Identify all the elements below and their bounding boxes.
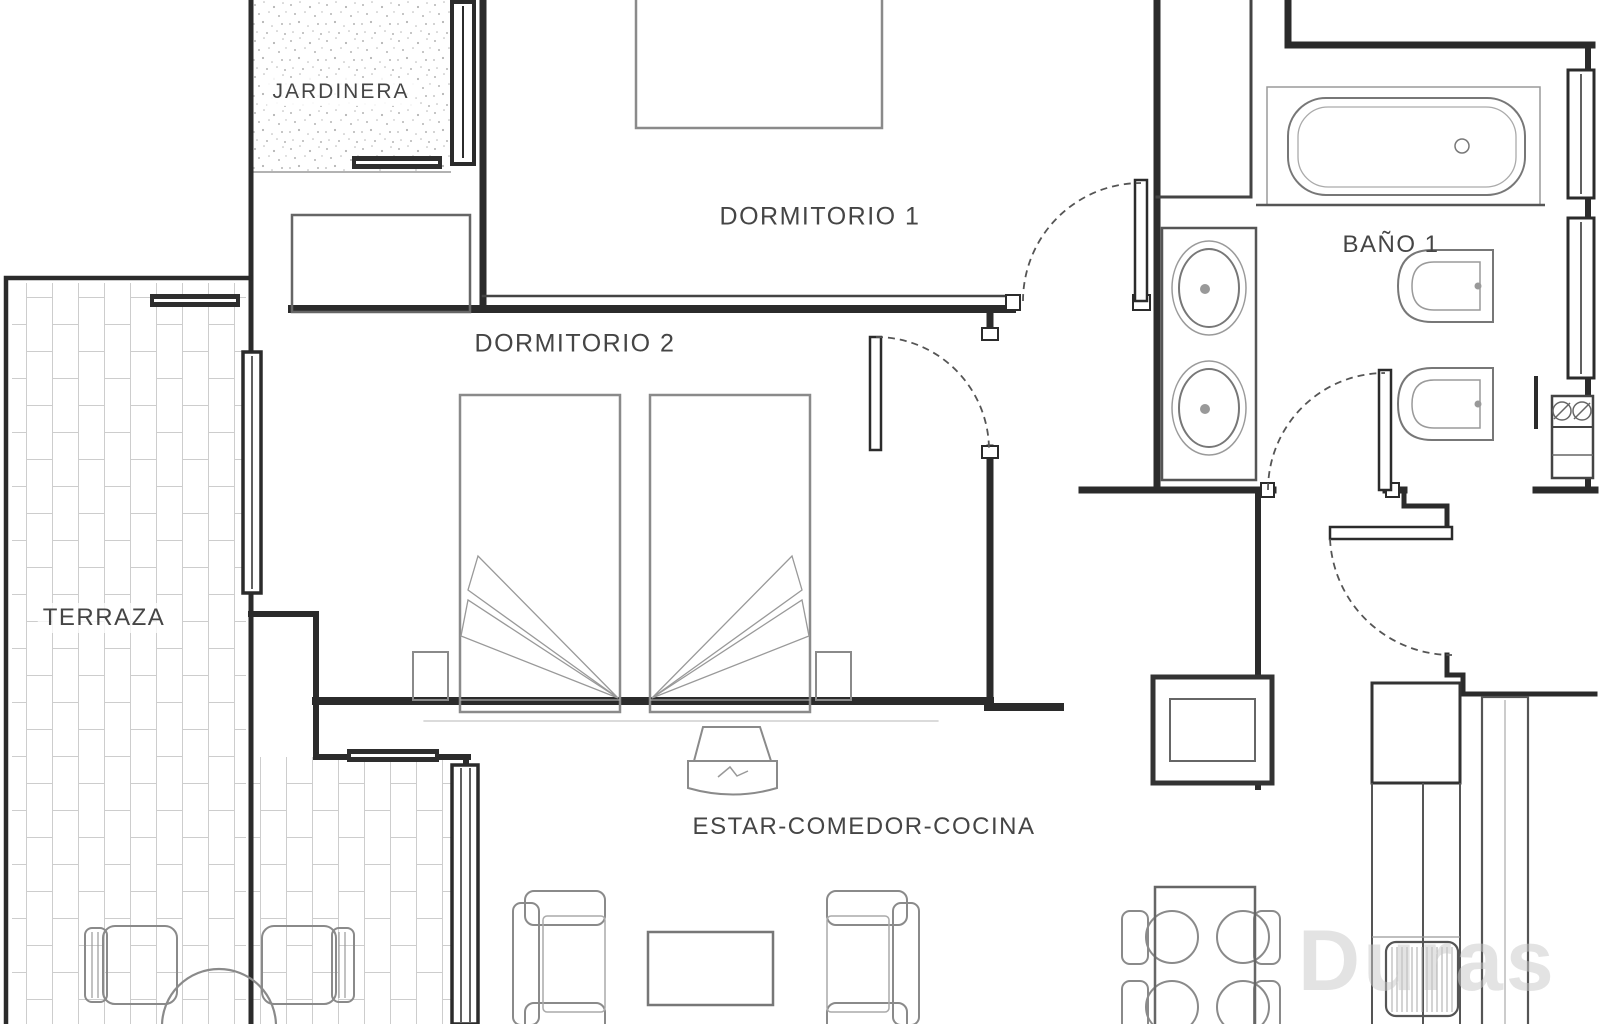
dining-table [1155,887,1255,1024]
label-jardinera: JARDINERA [266,78,415,106]
sheet-fold [461,600,618,698]
wall-bath-top [1288,0,1592,45]
washer-icon [1552,396,1593,478]
floor-plan-drawing [0,0,1600,1024]
wall-entry-steps [1404,490,1595,694]
nightstand-right [816,652,851,700]
window-sill-estar-sw [347,749,439,762]
bidet-icon [1398,368,1493,440]
door-swing-arc [1023,183,1141,301]
bed-dorm1 [636,0,882,128]
sheet-fold [652,600,809,698]
window-sill-terraza-top [150,294,240,307]
window-jardinera-right [452,2,474,164]
dining-set [1122,887,1280,1024]
door-swing-arc [1268,373,1385,490]
watermark: Duras [1298,912,1557,1011]
fridge-icon [1372,683,1460,783]
bed-dorm2-left [460,395,620,712]
floor-textures [12,0,452,1024]
bathtub-icon [1288,98,1525,195]
door-leaf [1379,370,1391,490]
bed-dorm2-right [650,395,810,712]
bathroom-fixtures [1162,87,1593,480]
armchair-right [827,891,919,1024]
door-leaf [1135,180,1147,301]
label-estar: ESTAR-COMEDOR-COCINA [693,813,1036,841]
coffee-table [648,932,773,1005]
wall-dorm2-sw-jog [251,614,316,757]
toilet-icon [1398,250,1493,322]
floor-plan: JARDINERA DORMITORIO 1 DORMITORIO 2 BAÑO… [0,0,1600,1024]
window-sliding-estar-terraza [452,765,478,1024]
door-swing-arc [1330,539,1452,655]
door-swing-arc [876,337,989,450]
door-leaf [1330,527,1452,539]
window-bath-right-2 [1568,218,1594,378]
wardrobe-dorm2 [292,215,470,312]
door-dormitorio2 [870,328,998,458]
label-dormitorio1: DORMITORIO 1 [720,203,921,232]
door-bano1 [1261,370,1399,497]
nightstand-left [413,652,448,700]
kitchen-island [1153,677,1272,783]
sink-icon-1 [1172,241,1246,335]
door-leaf [870,337,881,450]
window-sill-jardinera [352,156,442,169]
label-bano1: BAÑO 1 [1342,231,1439,259]
door-dormitorio1 [1006,180,1150,310]
wall-duct-niche [1157,0,1251,197]
dining-chairs [1122,911,1280,1024]
sink-icon-2 [1172,361,1246,455]
label-dormitorio2: DORMITORIO 2 [475,330,676,359]
armchair-left [513,891,605,1024]
tv-unit-icon [688,727,777,795]
terraza-tiles-lower [253,757,452,1024]
window-bath-right-1 [1568,70,1594,198]
label-terraza: TERRAZA [38,603,171,633]
wall-dorm2-bottom [316,701,1060,707]
window-dorm2-terraza [243,352,261,593]
terraza-tiles-upper [12,283,246,1024]
door-entry [1330,527,1452,655]
